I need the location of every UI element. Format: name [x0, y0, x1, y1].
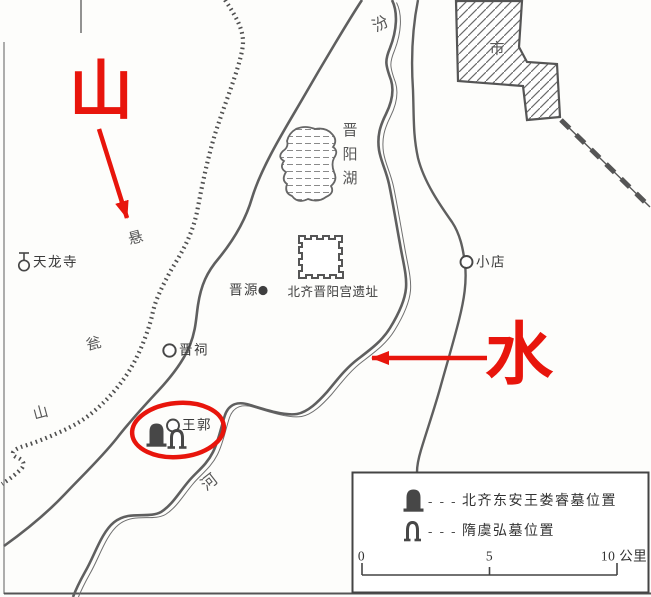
- city-area: [456, 1, 560, 120]
- tianlong-temple-label: 天龙寺: [33, 255, 78, 269]
- jinci-label: 晋祠: [179, 343, 209, 357]
- palace-ruins-square: [299, 236, 343, 278]
- lourui-tomb-icon: [147, 424, 167, 447]
- jinci-circle: [163, 344, 175, 356]
- jinyang-lake: [280, 127, 336, 201]
- annotation-mountain-char: 山: [69, 60, 133, 124]
- scale-tick-5: 5: [486, 549, 493, 563]
- mountain-arrow: [99, 129, 127, 218]
- legend-row1-dashes: - - -: [428, 495, 458, 508]
- site-map: 山 水 汾 河 晋阳湖 悬 瓮 山 市 天龙寺 晋源 北齐晋阳宫遗址 晋祠 王郭…: [0, 0, 651, 597]
- legend-row1-label: 北齐东安王娄睿墓位置: [462, 495, 617, 509]
- palace-ruins-label: 北齐晋阳宫遗址: [287, 286, 378, 299]
- xiaodian-label: 小店: [476, 255, 506, 269]
- city-label: 市: [489, 43, 504, 58]
- legend-row2-label: 隋虞弘墓位置: [462, 525, 555, 539]
- scale-tick-10: 10 公里: [601, 549, 647, 563]
- temple-icon: [19, 253, 29, 271]
- scale-tick-0: 0: [358, 549, 365, 563]
- yuhong-tomb-icon: [168, 431, 187, 448]
- jinyang-lake-label: 晋阳湖: [341, 122, 356, 194]
- jinyuan-label: 晋源: [229, 283, 259, 297]
- jinyuan-dot: [258, 286, 267, 295]
- xiaodian-circle: [461, 256, 473, 268]
- wangguo-label: 王郭: [182, 418, 212, 432]
- legend-row2-dashes: - - -: [428, 525, 458, 538]
- annotation-water-char: 水: [485, 321, 553, 389]
